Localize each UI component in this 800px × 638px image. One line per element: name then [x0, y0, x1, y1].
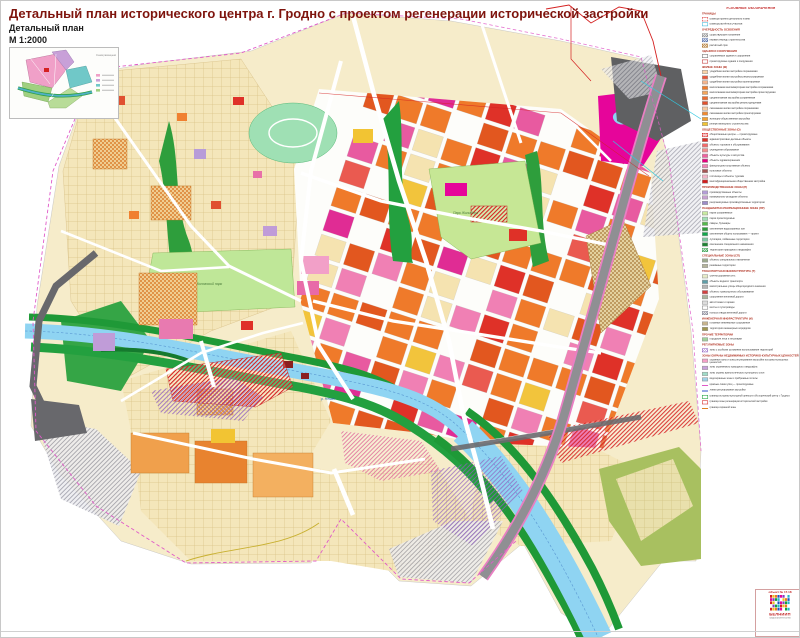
- legend-item: парки проектируемые: [702, 217, 800, 221]
- legend-item: режимные территории: [702, 264, 800, 268]
- legend-item: городские леса и лесопарки: [702, 337, 800, 341]
- legend-item: производственные объекты: [702, 190, 800, 194]
- legend-item: территории инженерных коридоров: [702, 327, 800, 331]
- legend-item: головные инженерные сооружения: [702, 322, 800, 326]
- legend-item: реорганизуемые производственные территор…: [702, 201, 800, 205]
- legend-item: резерв жилищного строительства: [702, 122, 800, 126]
- legend-item: граница историко-культурной ценности «Ис…: [702, 395, 800, 399]
- legend-item: сохраняемые здания и сооружения: [702, 54, 800, 58]
- legend-item: общественные центры — проектируемые: [702, 133, 800, 137]
- legend-section-header: ЗДАНИЯ И СООРУЖЕНИЯ: [702, 50, 800, 53]
- legend-item: смешанная жилая застройка сохраняемая: [702, 106, 800, 110]
- institute-stamp: объект № 17.18 БЕЛНИИП градостроительств…: [755, 589, 800, 637]
- sheet-bottom-rule: [1, 631, 800, 632]
- legend-item: многофункциональная общественная застрой…: [702, 180, 800, 184]
- legend-item: полоса отвода железной дороги: [702, 311, 800, 315]
- plan-sheet: Парк ЖилибераКоложский паркр. Неман Дета…: [0, 0, 800, 638]
- legend-item: учреждения образования: [702, 148, 800, 152]
- map-label: Парк Жилибера: [453, 211, 478, 215]
- legend-item: парки сохраняемые: [702, 211, 800, 215]
- legend-item: усадебная жилая застройка сохраняемая: [702, 70, 800, 74]
- inset-map-svg: Схема размещения проектируемой территори…: [10, 48, 116, 116]
- legend-item: расчётный срок: [702, 43, 800, 47]
- map-label: Коложский парк: [197, 282, 223, 286]
- legend-item: скверы, бульвары: [702, 222, 800, 226]
- legend-item: объекты культуры и искусства: [702, 154, 800, 158]
- legend-section-header: ОЧЕРЕДНОСТЬ ОСВОЕНИЯ: [702, 29, 800, 32]
- legend-sections: ГРАНИЦЫграница проекта детального планаг…: [702, 13, 800, 352]
- legend-section-header: ПРОИЗВОДСТВЕННЫЕ ЗОНЫ (П): [702, 186, 800, 189]
- legend-item: граница проекта детального плана: [702, 17, 800, 21]
- legend-item: малоэтажная многоквартирная застройка со…: [702, 86, 800, 90]
- map-label: р. Неман: [320, 397, 335, 401]
- main-map: Парк ЖилибераКоложский паркр. Неман: [1, 1, 800, 638]
- legend-item: линии регулирования застройки: [702, 389, 800, 393]
- legend-item: территории природного ландшафта: [702, 248, 800, 252]
- legend-item: усадебная жилая застройка проектируемая: [702, 80, 800, 84]
- legend-item: проектируемые здания и сооружения: [702, 59, 800, 63]
- legend-item: магистральные улицы общегородского значе…: [702, 285, 800, 289]
- legend-item: объекты торговли и обслуживания: [702, 143, 800, 147]
- legend-item: красные линии улиц — проектируемые: [702, 383, 800, 387]
- legend-item: сооружения железной дороги: [702, 295, 800, 299]
- legend-item: объекты здравоохранения: [702, 159, 800, 163]
- sheet-title: Детальный план исторического центра г. Г…: [9, 6, 648, 21]
- legend-item: объекты водного транспорта: [702, 280, 800, 284]
- sheet-subtitle: Детальный план: [9, 23, 84, 33]
- institute-logo-icon: [769, 595, 791, 612]
- legend-section-header: ЖИЛЫЕ ЗОНЫ (Ж): [702, 66, 800, 69]
- legend-item: среднеэтажная застройка сохраняемая: [702, 96, 800, 100]
- legend-section-header: ОБЩЕСТВЕННЫЕ ЗОНЫ (О): [702, 129, 800, 132]
- legend-item: мосты и путепроводы: [702, 306, 800, 310]
- main-map-svg: Парк ЖилибераКоложский паркр. Неман: [1, 1, 800, 638]
- legend-item: улично-дорожная сеть: [702, 274, 800, 278]
- legend-item: автостоянки и гаражи: [702, 300, 800, 304]
- legend-item: граница зоны регенерации исторической за…: [702, 401, 800, 405]
- legend-item: озеленение общего пользования — проект: [702, 232, 800, 236]
- legend-item: первая очередь строительства: [702, 38, 800, 42]
- stamp-object-number: объект № 17.18: [758, 591, 800, 594]
- legend-section-header: ЛАНДШАФТНО-РЕКРЕАЦИОННЫЕ ЗОНЫ (ЛР): [702, 207, 800, 210]
- legend-item: граница расчётных участков: [702, 22, 800, 26]
- legend-item: объекты транспортного обслуживания: [702, 290, 800, 294]
- legend-title: УСЛОВНЫЕ ОБОЗНАЧЕНИЯ: [702, 7, 800, 10]
- legend-section-header: ИНЖЕНЕРНАЯ ИНФРАСТРУКТУРА (И): [702, 317, 800, 320]
- legend-section-header: ГРАНИЦЫ: [702, 13, 800, 16]
- legend-item: зоны с особыми условиями использования т…: [702, 348, 800, 352]
- legend-item: водоохранные зоны и прибрежные полосы: [702, 378, 800, 382]
- legend-item: охранные зоны и зоны регулирования застр…: [702, 359, 800, 364]
- legend-item: граница охранной зоны: [702, 406, 800, 410]
- legend-item: культовые объекты: [702, 169, 800, 173]
- legend-notes-header: ЗОНЫ ОХРАНЫ НЕДВИЖИМЫХ ИСТОРИКО-КУЛЬТУРН…: [702, 355, 800, 358]
- legend-item: озеленение специального назначения: [702, 243, 800, 247]
- legend-item: существующее положение: [702, 33, 800, 37]
- legend-item: жилищно-общественная застройка: [702, 117, 800, 121]
- legend-item: смешанная жилая застройка проектируемая: [702, 112, 800, 116]
- legend-item: административно-деловые объекты: [702, 138, 800, 142]
- legend-section-header: ПРОЧИЕ ТЕРРИТОРИИ: [702, 333, 800, 336]
- inset-caption: Схема размещения проектируемой территори…: [96, 54, 116, 57]
- stamp-org-subtitle: градостроительства: [758, 617, 800, 620]
- legend: УСЛОВНЫЕ ОБОЗНАЧЕНИЯ ГРАНИЦЫграница прое…: [702, 7, 800, 412]
- legend-item: зоны охраны археологического культурного…: [702, 372, 800, 376]
- legend-section-header: ТРАНСПОРТНАЯ ИНФРАСТРУКТУРА (Т): [702, 270, 800, 273]
- legend-item: коммунально-складские объекты: [702, 196, 800, 200]
- legend-item: среднеэтажная застройка реконструируемая: [702, 101, 800, 105]
- inset-legend: [96, 74, 114, 92]
- inset-map: Схема размещения проектируемой территори…: [9, 47, 119, 119]
- legend-notes: охранные зоны и зоны регулирования застр…: [702, 359, 800, 410]
- legend-item: озеленение водоохранных зон: [702, 227, 800, 231]
- legend-item: малоэтажная многоквартирная застройка пр…: [702, 91, 800, 95]
- legend-item: лугопарки, пойменные территории: [702, 237, 800, 241]
- legend-section-header: РЕГУЛИРУЕМЫЕ ЗОНЫ: [702, 344, 800, 347]
- legend-section-header: СПЕЦИАЛЬНЫЕ ЗОНЫ (СП): [702, 254, 800, 257]
- legend-item: физкультурно-спортивные объекты: [702, 164, 800, 168]
- legend-item: зоны охраняемого природного ландшафта: [702, 366, 800, 370]
- sheet-scale: М 1:2000: [9, 35, 47, 45]
- legend-item: усадебная жилая застройка реконструируем…: [702, 75, 800, 79]
- legend-item: гостиницы и объекты туризма: [702, 174, 800, 178]
- legend-item: объекты специального назначения: [702, 259, 800, 263]
